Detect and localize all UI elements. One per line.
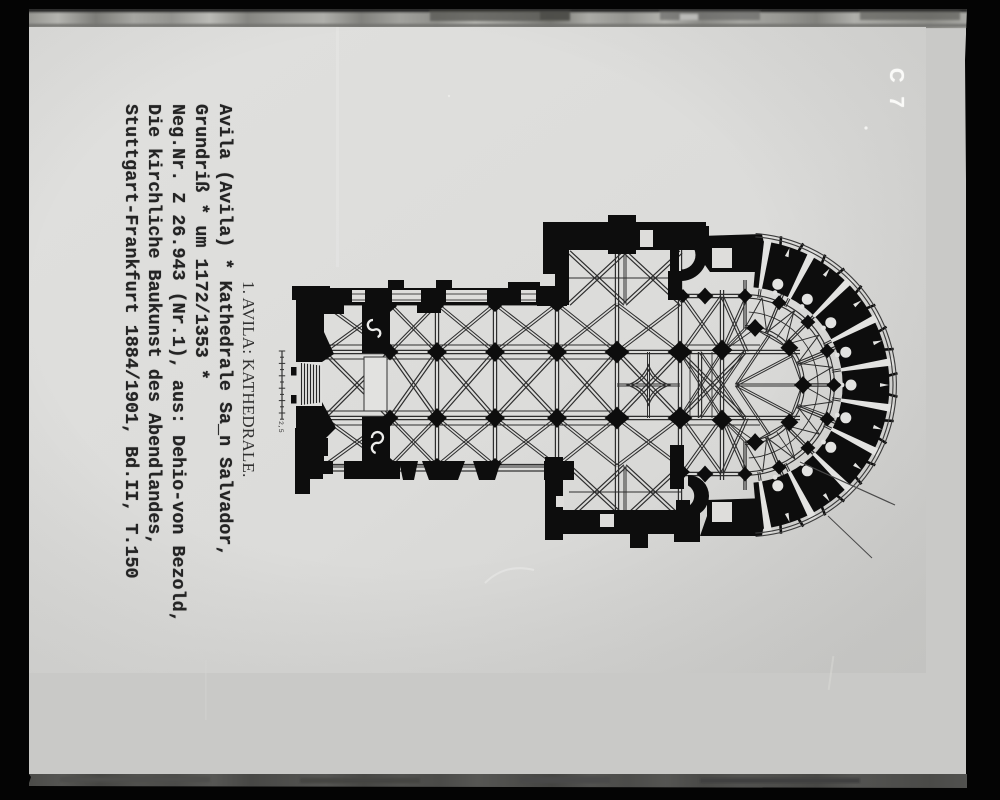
svg-text:2,5: 2,5 [277, 421, 284, 433]
